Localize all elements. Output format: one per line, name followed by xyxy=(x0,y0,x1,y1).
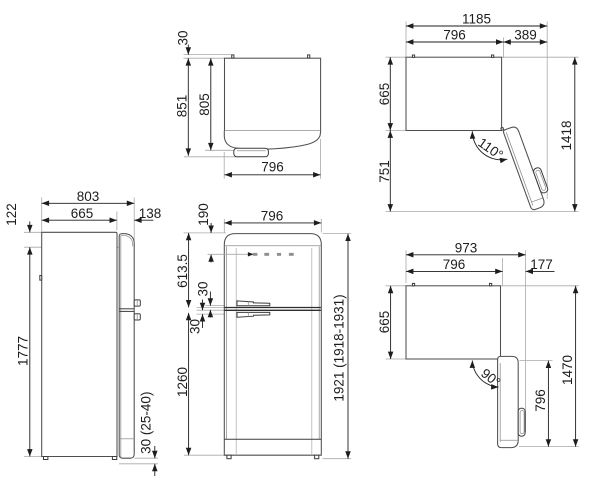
svg-text:665: 665 xyxy=(377,83,392,106)
svg-text:389: 389 xyxy=(514,28,537,43)
svg-text:796: 796 xyxy=(533,389,548,412)
svg-text:177: 177 xyxy=(530,257,553,272)
svg-text:1921 (1918-1931): 1921 (1918-1931) xyxy=(332,294,347,401)
svg-text:796: 796 xyxy=(443,28,466,43)
svg-text:190: 190 xyxy=(196,203,211,226)
svg-text:1185: 1185 xyxy=(462,11,491,26)
svg-text:796: 796 xyxy=(261,159,284,174)
svg-text:138: 138 xyxy=(139,206,162,221)
svg-text:751: 751 xyxy=(377,160,392,183)
svg-text:851: 851 xyxy=(174,95,189,118)
svg-text:1418: 1418 xyxy=(559,120,574,150)
svg-text:796: 796 xyxy=(261,209,284,224)
svg-text:665: 665 xyxy=(377,311,392,334)
svg-text:30: 30 xyxy=(187,319,202,334)
svg-text:1260: 1260 xyxy=(175,367,190,397)
svg-text:796: 796 xyxy=(443,257,466,272)
svg-text:30: 30 xyxy=(175,30,190,45)
svg-text:613.5: 613.5 xyxy=(175,254,190,288)
svg-text:665: 665 xyxy=(71,206,94,221)
svg-text:805: 805 xyxy=(197,93,212,116)
svg-text:973: 973 xyxy=(455,241,478,256)
svg-text:122: 122 xyxy=(4,203,19,226)
svg-text:803: 803 xyxy=(77,189,100,204)
svg-text:30: 30 xyxy=(195,281,210,296)
svg-text:30 (25-40): 30 (25-40) xyxy=(138,392,153,454)
svg-text:1777: 1777 xyxy=(16,336,31,366)
svg-text:1470: 1470 xyxy=(560,355,575,385)
